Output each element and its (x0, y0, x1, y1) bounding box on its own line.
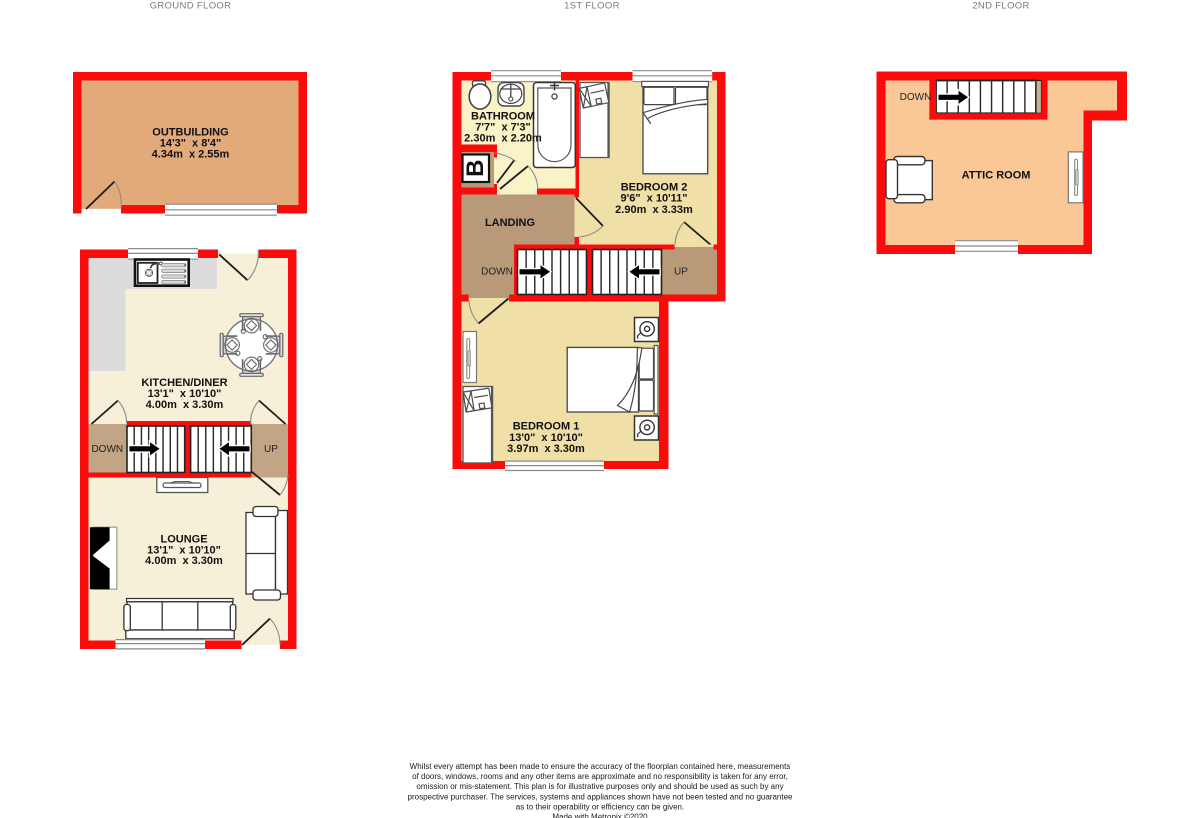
svg-text:ATTIC ROOM: ATTIC ROOM (962, 170, 1031, 182)
svg-text:13'0" x 10'10": 13'0" x 10'10" (509, 432, 583, 444)
svg-text:4.34m x 2.55m: 4.34m x 2.55m (152, 149, 230, 161)
svg-text:GROUND FLOOR: GROUND FLOOR (150, 1, 232, 12)
svg-text:1ST FLOOR: 1ST FLOOR (564, 1, 620, 12)
svg-text:as to their operability or eff: as to their operability or efficiency ca… (516, 802, 684, 811)
svg-text:omission or mis-statement. Thi: omission or mis-statement. This plan is … (416, 782, 783, 791)
svg-text:2ND FLOOR: 2ND FLOOR (972, 1, 1030, 12)
svg-text:DOWN: DOWN (481, 267, 513, 278)
svg-text:3.97m x 3.30m: 3.97m x 3.30m (507, 443, 585, 455)
svg-text:9'6" x 10'11": 9'6" x 10'11" (620, 193, 687, 205)
svg-text:of doors, windows, rooms and a: of doors, windows, rooms and any other i… (412, 772, 788, 781)
svg-text:DOWN: DOWN (91, 444, 123, 455)
svg-text:B: B (462, 160, 489, 177)
svg-text:4.00m x 3.30m: 4.00m x 3.30m (145, 555, 223, 567)
svg-text:4.00m x 3.30m: 4.00m x 3.30m (146, 399, 224, 411)
svg-text:UP: UP (674, 267, 688, 278)
svg-text:DOWN: DOWN (900, 92, 932, 103)
svg-text:Made with Metropix ©2020: Made with Metropix ©2020 (552, 813, 648, 818)
svg-text:prospective purchaser. The ser: prospective purchaser. The services, sys… (408, 792, 794, 801)
svg-text:BEDROOM 1: BEDROOM 1 (513, 421, 580, 433)
svg-text:BEDROOM 2: BEDROOM 2 (621, 182, 688, 194)
svg-text:LANDING: LANDING (485, 217, 535, 229)
svg-text:2.30m x 2.20m: 2.30m x 2.20m (464, 133, 542, 145)
svg-text:Whilst every attempt has been: Whilst every attempt has been made to en… (410, 762, 791, 771)
svg-text:UP: UP (264, 444, 278, 455)
svg-text:2.90m x 3.33m: 2.90m x 3.33m (615, 204, 693, 216)
